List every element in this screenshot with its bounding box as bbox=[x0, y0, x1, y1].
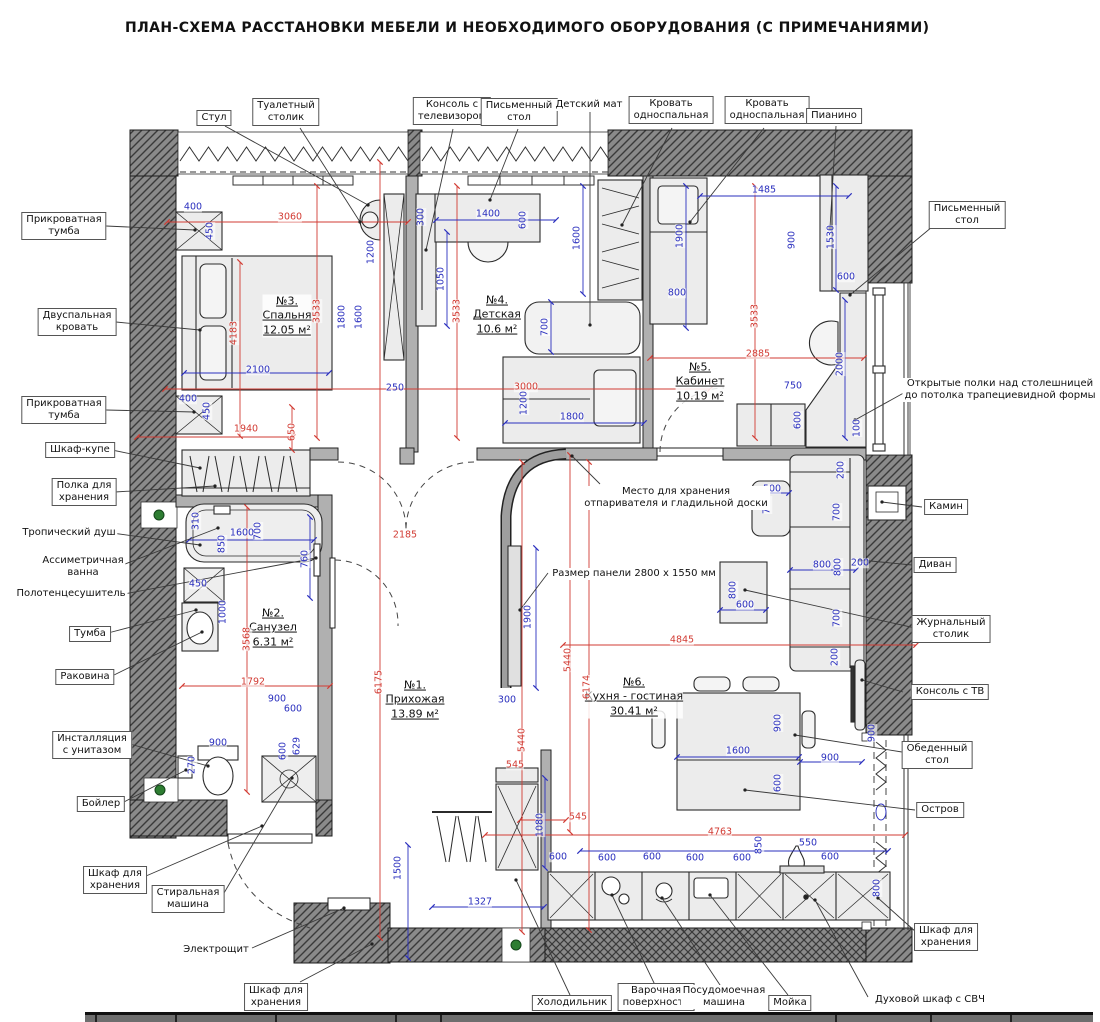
dimension-value: 6175 bbox=[374, 670, 384, 694]
dimension-value: 2100 bbox=[246, 365, 270, 375]
dimension-value: 600 bbox=[549, 852, 567, 862]
dimension-value: 600 bbox=[793, 411, 803, 429]
dimension-value: 1600 bbox=[572, 226, 582, 250]
dimension-value: 200 bbox=[830, 648, 840, 666]
dimension-value: 900 bbox=[209, 738, 227, 748]
bath-faucet bbox=[214, 506, 230, 514]
dimension-value: 800 bbox=[872, 879, 882, 897]
callout-label: Мойка bbox=[768, 995, 811, 1011]
dimension-value: 3533 bbox=[452, 299, 462, 323]
callout-label: Размер панели 2800 х 1550 мм bbox=[550, 568, 718, 580]
callout-label: Место для храненияотпаривателя и гладиль… bbox=[582, 486, 770, 510]
dimension-value: 300 bbox=[416, 208, 426, 226]
dimension-value: 800 bbox=[813, 560, 831, 570]
dimension-value: 700 bbox=[540, 318, 550, 336]
sliding-panel-leaf bbox=[508, 546, 521, 686]
callout-label: Остров bbox=[916, 802, 964, 818]
callout-label: Обеденныйстол bbox=[902, 741, 973, 769]
callout-label: Открытые полки над столешницейдо потолка… bbox=[902, 378, 1097, 402]
coat-hangers bbox=[437, 816, 486, 862]
desk-chair bbox=[468, 242, 508, 262]
dimension-value: 5440 bbox=[517, 728, 527, 752]
room-label: №5.Кабинет10.19 м² bbox=[676, 361, 725, 404]
callout-label: Камин bbox=[924, 499, 968, 515]
dimension-value: 800 bbox=[833, 558, 843, 576]
dimension-value: 2885 bbox=[746, 349, 770, 359]
dimension-value: 400 bbox=[179, 394, 197, 404]
dimension-value: 1050 bbox=[436, 267, 446, 291]
dimension-value: 450 bbox=[202, 402, 212, 420]
callout-label: Прикроватнаятумба bbox=[21, 396, 106, 424]
callout-label: Раковина bbox=[55, 669, 114, 685]
dimension-value: 1800 bbox=[337, 305, 347, 329]
hob bbox=[780, 866, 824, 873]
callout-label: Шкаф дляхранения bbox=[244, 983, 308, 1011]
dimension-value: 2000 bbox=[835, 352, 845, 376]
dimension-value: 5440 bbox=[563, 648, 573, 672]
dimension-value: 900 bbox=[867, 724, 877, 742]
stool bbox=[362, 212, 378, 228]
room-label: №3.Спальня12.05 м² bbox=[263, 295, 312, 338]
floor-plan-sheet: ПЛАН-СХЕМА РАССТАНОВКИ МЕБЕЛИ И НЕОБХОДИ… bbox=[0, 0, 1100, 1022]
chair bbox=[743, 677, 779, 691]
dimension-value: 600 bbox=[733, 853, 751, 863]
dimension-value: 450 bbox=[189, 579, 207, 589]
dimension-value: 1940 bbox=[234, 424, 258, 434]
callout-label: Кроватьодноспальная bbox=[629, 96, 714, 124]
dimension-value: 450 bbox=[205, 222, 215, 240]
dimension-value: 1080 bbox=[535, 813, 545, 837]
dimension-value: 1900 bbox=[523, 605, 533, 629]
dimension-value: 6174 bbox=[582, 675, 592, 699]
dimension-value: 3533 bbox=[750, 304, 760, 328]
dimension-value: 760 bbox=[300, 550, 310, 568]
callout-label: Посудомоечнаямашина bbox=[681, 985, 768, 1009]
callout-label: Полотенцесушитель bbox=[15, 588, 128, 600]
dimension-value: 310 bbox=[191, 512, 201, 530]
dimension-value: 900 bbox=[787, 231, 797, 249]
callout-label: Письменныйстол bbox=[481, 98, 558, 126]
dimension-value: 1200 bbox=[366, 240, 376, 264]
callout-label: Электрощит bbox=[181, 944, 251, 956]
dimension-value: 650 bbox=[287, 423, 297, 441]
dimension-value: 600 bbox=[686, 853, 704, 863]
dimension-value: 700 bbox=[253, 522, 263, 540]
callout-label: Стиральнаямашина bbox=[152, 885, 225, 913]
callout-label: Кроватьодноспальная bbox=[725, 96, 810, 124]
kitchen-sink-bowl bbox=[602, 877, 620, 895]
dimension-value: 600 bbox=[643, 852, 661, 862]
dimension-value: 1600 bbox=[230, 528, 254, 538]
dimension-value: 700 bbox=[832, 503, 842, 521]
callout-label: Инсталляцияс унитазом bbox=[52, 731, 132, 759]
sheet-table-edge bbox=[85, 1012, 1093, 1022]
callout-label: Консоль с ТВ bbox=[911, 684, 989, 700]
page-title: ПЛАН-СХЕМА РАССТАНОВКИ МЕБЕЛИ И НЕОБХОДИ… bbox=[125, 20, 929, 36]
dimension-value: 550 bbox=[799, 838, 817, 848]
callout-label: Консоль стелевизором bbox=[413, 97, 491, 125]
dimension-value: 1900 bbox=[675, 224, 685, 248]
callout-label: Духовой шкаф с СВЧ bbox=[873, 994, 987, 1006]
dimension-value: 600 bbox=[773, 774, 783, 792]
dimension-value: 1600 bbox=[726, 746, 750, 756]
callout-label: Пианино bbox=[806, 108, 862, 124]
callout-label: Туалетныйстолик bbox=[252, 98, 319, 126]
dimension-value: 629 bbox=[292, 737, 302, 755]
dimension-value: 1600 bbox=[354, 305, 364, 329]
dimension-value: 4845 bbox=[670, 635, 694, 645]
dimension-value: 1792 bbox=[241, 677, 265, 687]
callout-label: Полка дляхранения bbox=[52, 478, 117, 506]
dimension-value: 850 bbox=[754, 836, 764, 854]
room-label: №6.Кухня - гостиная30.41 м² bbox=[585, 676, 683, 719]
callout-label: Двуспальнаякровать bbox=[38, 308, 117, 336]
office-furniture bbox=[650, 175, 885, 451]
dimension-value: 4763 bbox=[708, 827, 732, 837]
callout-label: Стул bbox=[196, 110, 231, 126]
toilet-bowl bbox=[203, 757, 233, 795]
dimension-value: 750 bbox=[784, 381, 802, 391]
callout-label: Прикроватнаятумба bbox=[21, 212, 106, 240]
callout-label: Тропический душ bbox=[20, 527, 117, 539]
callout-label: Бойлер bbox=[77, 796, 125, 812]
dimension-value: 3568 bbox=[242, 627, 252, 651]
dimension-value: 900 bbox=[821, 753, 839, 763]
dimension-value: 600 bbox=[821, 852, 839, 862]
room-label: №2.Санузел6.31 м² bbox=[249, 607, 297, 650]
towel-dryer bbox=[314, 544, 320, 576]
dimension-value: 270 bbox=[187, 756, 197, 774]
room-label: №1.Прихожая13.89 м² bbox=[386, 679, 445, 722]
dimension-value: 850 bbox=[217, 535, 227, 553]
dimension-value: 600 bbox=[837, 272, 855, 282]
dimension-value: 300 bbox=[498, 695, 516, 705]
dimension-value: 2185 bbox=[393, 530, 417, 540]
dimension-value: 1327 bbox=[468, 897, 492, 907]
dimension-value: 400 bbox=[184, 202, 202, 212]
callout-label: Ассиметричнаяванна bbox=[40, 555, 125, 579]
sink-basin bbox=[694, 878, 728, 898]
dimension-value: 1485 bbox=[752, 185, 776, 195]
callout-label: Шкаф дляхранения bbox=[914, 923, 978, 951]
dimension-value: 1500 bbox=[393, 856, 403, 880]
dimension-value: 800 bbox=[668, 288, 686, 298]
dimension-value: 1200 bbox=[519, 391, 529, 415]
window-bedroom bbox=[178, 132, 408, 174]
single-bed-1 bbox=[598, 180, 642, 300]
dimension-value: 1000 bbox=[218, 600, 228, 624]
callout-label: Журнальныйстолик bbox=[912, 615, 991, 643]
dimension-value: 800 bbox=[728, 581, 738, 599]
tv-screen bbox=[851, 666, 854, 722]
callout-label: Письменныйстол bbox=[929, 201, 1006, 229]
sink bbox=[187, 612, 213, 644]
dimension-value: 545 bbox=[569, 812, 587, 822]
dimension-value: 600 bbox=[598, 853, 616, 863]
dimension-value: 600 bbox=[284, 704, 302, 714]
electrical-panel bbox=[328, 898, 370, 910]
callout-label: Шкаф-купе bbox=[45, 442, 115, 458]
dishwasher-symbol bbox=[656, 883, 672, 899]
dimension-value: 900 bbox=[773, 714, 783, 732]
callout-label: Шкаф дляхранения bbox=[83, 866, 147, 894]
callout-label: Диван bbox=[914, 557, 957, 573]
callout-label: Холодильник bbox=[532, 995, 612, 1011]
callout-label: Детский мат bbox=[553, 99, 624, 111]
dimension-value: 250 bbox=[386, 383, 404, 393]
bathroom-fixtures bbox=[178, 504, 322, 802]
dimension-value: 600 bbox=[518, 211, 528, 229]
dimension-value: 700 bbox=[832, 609, 842, 627]
dimension-value: 200 bbox=[836, 461, 846, 479]
dimension-value: 100 bbox=[852, 419, 862, 437]
dimension-value: 4183 bbox=[229, 321, 239, 345]
chair bbox=[694, 677, 730, 691]
window-kidsroom bbox=[420, 132, 610, 174]
dimension-value: 600 bbox=[278, 742, 288, 760]
dimension-value: 545 bbox=[506, 760, 524, 770]
dimension-value: 3060 bbox=[278, 212, 302, 222]
callout-label: Тумба bbox=[69, 626, 111, 642]
dimension-value: 200 bbox=[851, 558, 869, 568]
chair bbox=[802, 711, 815, 748]
dimension-value: 600 bbox=[736, 600, 754, 610]
tv-console-living bbox=[855, 660, 865, 730]
dimension-value: 1530 bbox=[826, 225, 836, 249]
dimension-value: 1800 bbox=[560, 412, 584, 422]
dimension-value: 3533 bbox=[312, 299, 322, 323]
dimension-value: 1400 bbox=[476, 209, 500, 219]
room-label: №4.Детская10.6 м² bbox=[473, 294, 521, 337]
